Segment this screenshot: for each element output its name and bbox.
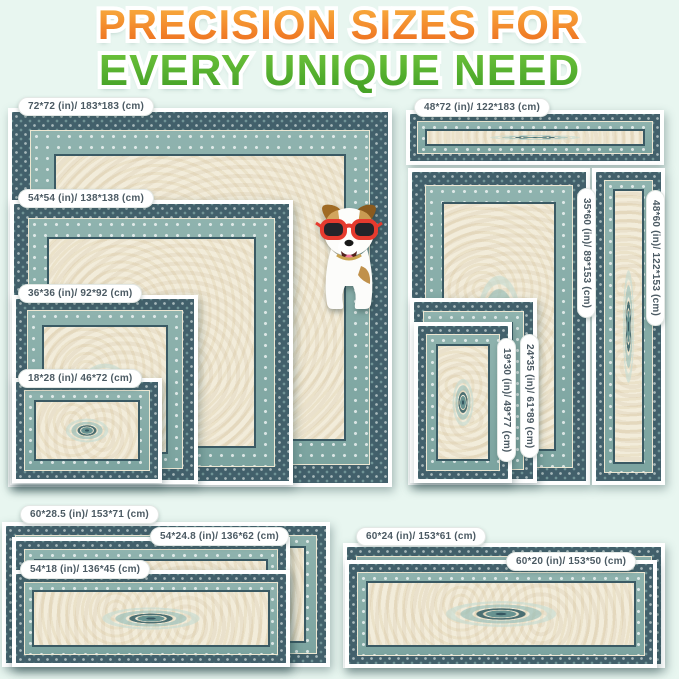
- size-label-18x28: 18*28 (in)/ 46*72 (cm): [18, 369, 142, 388]
- size-label-60x20: 60*20 (in)/ 153*50 (cm): [506, 552, 636, 571]
- rug-54x18: [12, 570, 290, 667]
- size-label-19x30: 19*30 (in)/ 49*77 (cm): [497, 338, 516, 462]
- size-label-24x35: 24*35 (in)/ 61*89 (cm): [520, 334, 539, 458]
- dog-photo: [298, 196, 400, 314]
- size-label-54x54: 54*54 (in)/ 138*138 (cm): [18, 189, 154, 208]
- rug-18x28: [12, 378, 162, 483]
- page-title: PRECISION SIZES FOR EVERY UNIQUE NEED: [0, 2, 679, 93]
- size-label-54x18: 54*18 (in)/ 136*45 (cm): [20, 560, 150, 579]
- rug-field-medallion: [34, 400, 140, 461]
- rug-48x72: [406, 110, 664, 165]
- size-label-36x36: 36*36 (in)/ 92*92 (cm): [18, 284, 142, 303]
- rug-60x20: [345, 560, 657, 668]
- title-line-2: EVERY UNIQUE NEED: [0, 48, 679, 93]
- size-label-72x72: 72*72 (in)/ 183*183 (cm): [18, 97, 154, 116]
- size-label-48x60: 48*60 (in)/ 122*153 (cm): [646, 190, 665, 326]
- rug-field-medallion: [613, 189, 644, 464]
- dog-nose: [345, 240, 354, 246]
- size-label-60x24: 60*24 (in)/ 153*61 (cm): [356, 527, 486, 546]
- size-label-60x28-5: 60*28.5 (in)/ 153*71 (cm): [20, 505, 159, 524]
- title-line-1: PRECISION SIZES FOR: [0, 2, 679, 48]
- rug-sizes-infographic: PRECISION SIZES FOR EVERY UNIQUE NEED: [0, 0, 679, 679]
- dog-sunglasses-bridge: [345, 226, 353, 228]
- rug-field-medallion: [366, 581, 636, 647]
- rug-field-medallion: [436, 344, 490, 461]
- rug-field-medallion: [32, 590, 270, 647]
- rug-field-medallion: [425, 129, 645, 146]
- size-label-35x60: 35*60 (in)/ 89*153 (cm): [577, 188, 596, 318]
- size-label-48x72: 48*72 (in)/ 122*183 (cm): [414, 98, 550, 117]
- size-label-54x24-8: 54*24.8 (in)/ 136*62 (cm): [150, 527, 289, 546]
